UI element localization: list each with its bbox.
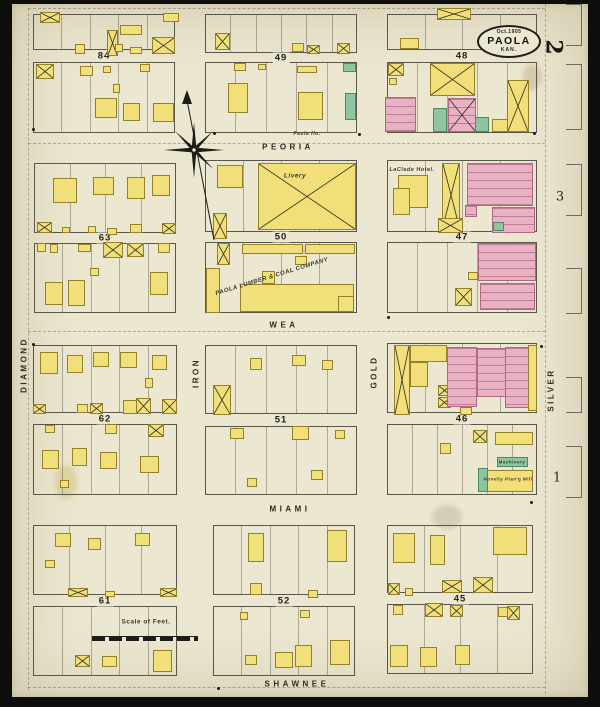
building bbox=[393, 188, 410, 215]
building bbox=[473, 577, 493, 593]
building bbox=[72, 448, 87, 466]
building bbox=[335, 430, 345, 439]
lot-line bbox=[298, 525, 299, 595]
building bbox=[50, 244, 58, 253]
building bbox=[45, 425, 55, 433]
scale-bar bbox=[92, 636, 198, 641]
street-name: SILVER bbox=[547, 368, 556, 411]
building bbox=[100, 452, 117, 469]
bracket-mark bbox=[566, 268, 582, 314]
building bbox=[528, 345, 537, 411]
building bbox=[307, 45, 320, 54]
building bbox=[68, 280, 85, 306]
block-number: 47 bbox=[454, 232, 471, 243]
building bbox=[393, 533, 415, 563]
building bbox=[90, 268, 99, 276]
building bbox=[152, 355, 167, 370]
block-number: 49 bbox=[273, 52, 290, 63]
building bbox=[113, 84, 120, 93]
building bbox=[153, 650, 172, 672]
lot-line bbox=[425, 14, 426, 50]
match-line bbox=[28, 331, 545, 332]
map-label: Novelty Plan'g Mill bbox=[483, 477, 532, 482]
lot-line bbox=[230, 14, 231, 53]
building bbox=[295, 645, 312, 667]
lot-line bbox=[424, 525, 425, 593]
lot-line bbox=[147, 14, 148, 50]
building bbox=[36, 64, 54, 79]
building bbox=[250, 358, 262, 370]
lot-line bbox=[147, 62, 148, 133]
map-label: Machinery bbox=[499, 460, 526, 465]
building bbox=[477, 348, 507, 397]
building bbox=[150, 272, 168, 295]
building bbox=[40, 352, 58, 374]
lot-line bbox=[91, 606, 92, 676]
survey-dot bbox=[387, 316, 390, 319]
building bbox=[292, 43, 304, 52]
building bbox=[298, 92, 323, 120]
building bbox=[88, 538, 101, 550]
building bbox=[388, 63, 404, 76]
building bbox=[245, 655, 257, 665]
lot-line bbox=[119, 606, 120, 676]
building bbox=[234, 63, 246, 71]
lot-line bbox=[447, 242, 448, 313]
lot-line bbox=[241, 525, 242, 595]
building bbox=[45, 560, 55, 568]
lot-line bbox=[61, 14, 62, 50]
lot-line bbox=[62, 345, 63, 413]
building bbox=[390, 645, 408, 667]
building bbox=[394, 345, 410, 415]
lot-line bbox=[281, 14, 282, 53]
title-oval: Oct.1905 PAOLA KAN. bbox=[477, 25, 541, 58]
building bbox=[507, 606, 520, 620]
lot-line bbox=[266, 62, 267, 133]
building bbox=[130, 47, 142, 54]
survey-dot bbox=[32, 128, 35, 131]
building bbox=[230, 428, 244, 439]
building bbox=[507, 80, 529, 132]
building bbox=[42, 450, 59, 469]
building bbox=[115, 44, 123, 52]
building bbox=[248, 533, 264, 562]
lot-line bbox=[332, 14, 333, 53]
building bbox=[228, 83, 248, 113]
building bbox=[258, 163, 356, 230]
lot-line bbox=[270, 606, 271, 676]
lot-line bbox=[256, 14, 257, 53]
building bbox=[292, 355, 306, 366]
lot-line bbox=[417, 62, 418, 133]
building bbox=[455, 288, 472, 306]
building bbox=[442, 580, 462, 593]
building bbox=[330, 640, 350, 665]
street-name: IRON bbox=[192, 358, 201, 388]
building bbox=[447, 347, 477, 407]
lot-line bbox=[118, 62, 119, 133]
building bbox=[93, 177, 114, 195]
building bbox=[455, 645, 470, 665]
building bbox=[275, 652, 293, 668]
block-number: 50 bbox=[273, 232, 290, 243]
building bbox=[103, 242, 123, 258]
building bbox=[136, 398, 151, 414]
building bbox=[385, 97, 416, 132]
street-name: SHAWNEE bbox=[265, 680, 330, 689]
block-number: 51 bbox=[273, 415, 290, 426]
building bbox=[473, 430, 487, 443]
map-label: LaClede Hotel. bbox=[389, 167, 434, 173]
building bbox=[437, 8, 471, 20]
block-number: 45 bbox=[452, 593, 469, 604]
lot-line bbox=[327, 345, 328, 414]
building bbox=[410, 345, 447, 362]
building bbox=[393, 605, 403, 615]
building bbox=[405, 588, 413, 596]
lot-line bbox=[62, 606, 63, 676]
building bbox=[103, 66, 111, 73]
bracket-mark bbox=[566, 446, 582, 498]
building bbox=[95, 98, 117, 118]
building bbox=[460, 407, 472, 415]
building bbox=[389, 78, 397, 85]
building bbox=[438, 218, 463, 233]
building bbox=[327, 530, 347, 562]
survey-dot bbox=[540, 345, 543, 348]
street-name: DIAMOND bbox=[20, 337, 29, 393]
lot-line bbox=[105, 163, 106, 233]
building bbox=[467, 163, 533, 206]
building bbox=[468, 272, 478, 280]
building bbox=[33, 404, 46, 414]
building bbox=[145, 378, 153, 388]
street-name: GOLD bbox=[370, 355, 379, 388]
survey-dot bbox=[530, 501, 533, 504]
building bbox=[62, 227, 70, 233]
building bbox=[130, 224, 142, 233]
building bbox=[105, 591, 115, 597]
bracket-mark bbox=[566, 64, 582, 130]
building bbox=[338, 296, 354, 312]
building bbox=[123, 103, 140, 121]
building bbox=[107, 228, 117, 235]
lot-line bbox=[462, 424, 463, 495]
building bbox=[292, 426, 309, 440]
building bbox=[433, 108, 447, 132]
building bbox=[152, 37, 175, 54]
building bbox=[388, 583, 400, 595]
building bbox=[88, 226, 96, 233]
building bbox=[475, 117, 489, 132]
adjacent-sheet-number: 1 bbox=[553, 471, 561, 486]
lot-line bbox=[417, 242, 418, 313]
building bbox=[250, 583, 262, 595]
building bbox=[420, 647, 437, 667]
building bbox=[240, 612, 248, 620]
building bbox=[135, 533, 150, 546]
building bbox=[80, 66, 93, 76]
street-name: WEA bbox=[269, 321, 298, 330]
title-state: KAN. bbox=[501, 48, 517, 53]
map-label: Scale of Feet. bbox=[122, 619, 171, 626]
adjacent-sheet-number: 3 bbox=[556, 190, 564, 205]
building bbox=[160, 588, 177, 597]
building bbox=[67, 355, 83, 373]
building bbox=[140, 64, 150, 72]
lot-line bbox=[243, 160, 244, 232]
building bbox=[305, 244, 355, 254]
compass-rose-icon bbox=[158, 88, 228, 248]
lot-line bbox=[105, 525, 106, 595]
survey-dot bbox=[358, 133, 361, 136]
building bbox=[215, 33, 230, 50]
building bbox=[337, 43, 350, 54]
building bbox=[495, 432, 533, 445]
lot-line bbox=[270, 525, 271, 595]
building bbox=[163, 13, 179, 22]
building bbox=[90, 403, 103, 414]
building bbox=[240, 284, 354, 312]
lot-line bbox=[90, 14, 91, 50]
building bbox=[430, 535, 445, 565]
building bbox=[40, 12, 60, 23]
building bbox=[37, 243, 46, 252]
building bbox=[493, 527, 527, 555]
building bbox=[450, 605, 463, 617]
lot-line bbox=[61, 62, 62, 133]
lot-line bbox=[412, 424, 413, 495]
building bbox=[140, 456, 159, 473]
building bbox=[60, 480, 69, 488]
building bbox=[55, 533, 71, 547]
building bbox=[127, 177, 145, 199]
building bbox=[120, 25, 142, 35]
building bbox=[68, 588, 88, 597]
building bbox=[300, 610, 310, 618]
survey-dot bbox=[32, 343, 35, 346]
bracket-mark bbox=[566, 164, 582, 216]
survey-dot bbox=[533, 132, 536, 135]
building bbox=[311, 470, 323, 480]
map-label: Livery bbox=[284, 173, 306, 180]
building bbox=[77, 404, 88, 413]
building bbox=[127, 243, 144, 257]
photo-background: 844948635047625146615245PEORIAWEAMIAMISH… bbox=[0, 0, 600, 707]
building bbox=[493, 222, 504, 231]
lot-line bbox=[327, 426, 328, 495]
title-city: PAOLA bbox=[487, 36, 530, 47]
match-line bbox=[545, 4, 546, 694]
bracket-mark bbox=[566, 377, 582, 413]
building bbox=[322, 360, 333, 370]
building bbox=[105, 424, 117, 434]
lot-line bbox=[266, 345, 267, 414]
building bbox=[93, 352, 109, 367]
building bbox=[102, 656, 117, 667]
building bbox=[465, 205, 477, 217]
building bbox=[148, 424, 164, 437]
lot-line bbox=[148, 606, 149, 676]
lot-line bbox=[148, 243, 149, 313]
building bbox=[53, 178, 77, 203]
street-name: MIAMI bbox=[269, 505, 310, 514]
lot-line bbox=[91, 424, 92, 495]
building bbox=[345, 93, 356, 120]
building bbox=[213, 385, 231, 415]
building bbox=[505, 347, 530, 408]
lot-line bbox=[327, 606, 328, 676]
building bbox=[410, 362, 428, 387]
building bbox=[308, 590, 318, 598]
block-number: 52 bbox=[276, 595, 293, 606]
lot-line bbox=[119, 424, 120, 495]
building bbox=[247, 478, 257, 487]
building bbox=[242, 244, 303, 254]
building bbox=[343, 63, 356, 72]
building bbox=[37, 222, 52, 233]
building bbox=[400, 38, 419, 49]
block-number: 48 bbox=[454, 51, 471, 62]
building bbox=[75, 655, 90, 667]
bracket-mark bbox=[566, 4, 582, 46]
building bbox=[75, 44, 85, 54]
street-name: PEORIA bbox=[262, 143, 314, 152]
building bbox=[425, 603, 443, 617]
lot-line bbox=[437, 424, 438, 495]
building bbox=[448, 98, 476, 132]
building bbox=[78, 244, 91, 252]
building bbox=[120, 352, 137, 368]
map-layer: 844948635047625146615245PEORIAWEAMIAMISH… bbox=[0, 0, 600, 707]
building bbox=[297, 66, 317, 73]
survey-dot bbox=[217, 687, 220, 690]
lot-line bbox=[327, 62, 328, 133]
building bbox=[162, 399, 177, 414]
sheet-number: 2 bbox=[541, 39, 567, 54]
building bbox=[45, 282, 63, 305]
lot-line bbox=[91, 243, 92, 313]
building bbox=[107, 30, 118, 56]
building bbox=[258, 64, 266, 70]
map-label: Paola Ho. bbox=[293, 131, 320, 137]
building bbox=[480, 283, 535, 310]
building bbox=[440, 443, 451, 454]
lot-line bbox=[266, 426, 267, 495]
block-number: 62 bbox=[97, 413, 114, 424]
building bbox=[123, 400, 137, 414]
building bbox=[478, 243, 536, 281]
lot-line bbox=[235, 345, 236, 414]
building bbox=[430, 63, 475, 96]
